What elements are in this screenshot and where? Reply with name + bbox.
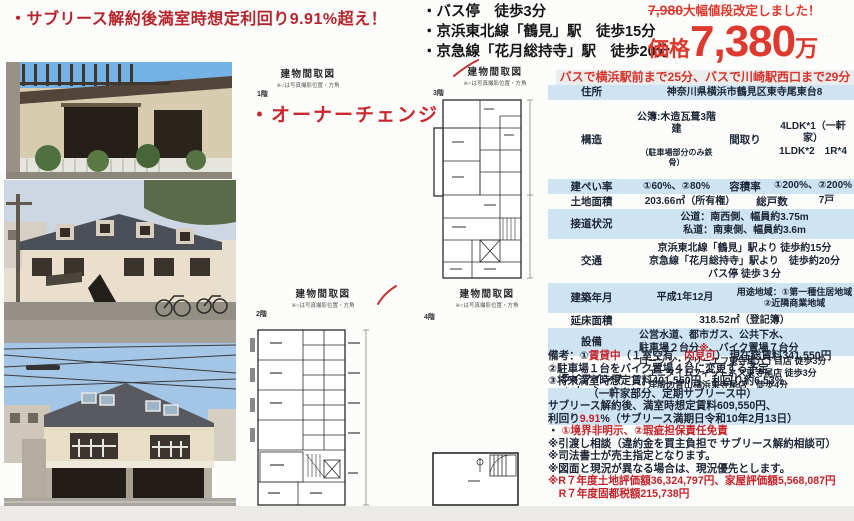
floorplan-header-1: 建物間取図 ※○は写真撮影位置・方角 <box>253 66 363 89</box>
value-transport: 京浜東北線「鶴見」駅より 徒歩約15分 京急線「花月総持寺」駅より 徒歩約20分… <box>635 242 854 281</box>
remark-6-bullet: ・ <box>548 425 562 437</box>
remark-0e: ） 現在総賃料341,550円 <box>716 350 831 362</box>
red-pen-mark-2 <box>376 284 398 306</box>
remark-line-1: ②駐車場１台をバイク置場４台に変更する予定 <box>548 363 854 376</box>
apartment-photo-illustration <box>4 180 236 343</box>
floorplan-subtitle-2: ※○は写真撮影位置・方角 <box>268 301 378 309</box>
remark-line-5: 利回り9.91%（サブリース満期日令和10年2月13日） <box>548 413 854 426</box>
value-land-area: 203.66㎡（所有権） <box>635 196 745 208</box>
price-old: 7,980 <box>648 2 683 18</box>
remark-0a: 備考：① <box>548 350 589 362</box>
label-coverage: 建ぺい率 <box>548 181 635 193</box>
remark-viewable-flag: 内見可 <box>684 350 716 362</box>
label-total-units: 総戸数 <box>745 194 799 209</box>
property-photo-2 <box>4 180 236 343</box>
remark-line-4: サブリース解約後、満室時想定賃料609,550円、 <box>548 400 854 413</box>
label-floor-area: 延床面積 <box>548 315 635 327</box>
structure-main: 公簿:木造瓦葺3階建 <box>635 112 718 136</box>
table-row-built: 建築年月 平成1年12月 用途地域：①第一種住居地域 ②近隣商業地域 <box>548 283 854 313</box>
remark-line-11: R７年度固都税額215,738円 <box>548 488 854 501</box>
value-zoning: 用途地域：①第一種住居地域 ②近隣商業地域 <box>735 287 854 310</box>
remark-line-2: ③将来満室時想定賃料401,550円、利回り約6.53% <box>548 375 854 388</box>
table-row-transport: 交通 京浜東北線「鶴見」駅より 徒歩約15分 京急線「花月総持寺」駅より 徒歩約… <box>548 239 854 283</box>
label-floor-ratio: 容積率 <box>718 179 772 194</box>
red-pen-mark-1 <box>452 58 480 78</box>
remark-line-0: 備考：①賃貸中（１室空有、内見可） 現在総賃料341,550円 <box>548 350 854 363</box>
label-land-area: 土地面積 <box>548 196 635 208</box>
price-unit: 万 <box>795 35 818 61</box>
remark-rented-flag: 賃貸中 <box>589 350 621 362</box>
value-road: 公道：南西側、幅員約3.75m 私道：南東側、幅員約3.6m <box>635 211 854 237</box>
label-layout: 間取り <box>718 132 772 147</box>
floorplan-header-4: 建物間取図 ※○は写真撮影位置・方角 <box>432 286 542 309</box>
flyer-page: ・サブリース解約後満室時想定利回り9.91%超え！ ・バス停 徒歩3分 ・京浜東… <box>0 0 854 521</box>
value-floor-ratio: ①200%、②200% <box>772 180 854 193</box>
floorplan-2f-svg <box>248 322 372 510</box>
remark-line-8: ※司法書士が売主指定となります。 <box>548 450 854 463</box>
label-transport: 交通 <box>548 255 635 267</box>
table-row-land: 土地面積 203.66㎡（所有権） 総戸数 7戸 <box>548 194 854 209</box>
property-photo-3 <box>4 343 236 516</box>
floorplan-title-2: 建物間取図 <box>268 286 378 300</box>
value-structure: 公簿:木造瓦葺3階建 （駐車場部分のみ鉄骨） <box>635 100 718 179</box>
remark-yield-value: 9.91 <box>580 413 601 425</box>
value-total-units: 7戸 <box>799 195 854 208</box>
label-address: 住所 <box>548 86 635 98</box>
price-area: 7,980大幅値段改定しました！ 価格7,380万 <box>648 2 854 74</box>
label-built: 建築年月 <box>548 292 635 304</box>
house-photo-illustration <box>6 62 232 179</box>
property-photo-1 <box>6 62 232 179</box>
floorplan-title-4: 建物間取図 <box>432 286 542 300</box>
floor-label-2f: 2階 <box>256 309 267 319</box>
price-value: 7,380 <box>690 17 795 66</box>
table-row-address: 住所 神奈川県横浜市鶴見区東寺尾東台8 <box>548 85 854 100</box>
price-notice: 大幅値段改定しました！ <box>683 4 821 18</box>
value-address: 神奈川県横浜市鶴見区東寺尾東台8 <box>635 86 854 99</box>
headline-text: ・サブリース解約後満室時想定利回り9.91%超え！ <box>10 5 387 29</box>
floor-label-1f: 1階 <box>257 89 268 99</box>
owner-change-note: ・オーナーチェンジ <box>250 100 439 127</box>
table-row-floor-area: 延床面積 318.52㎡（登記簿） <box>548 313 854 328</box>
footer-strip <box>0 506 854 521</box>
remark-line-9: ※図面と現況が異なる場合は、現況優先とします。 <box>548 463 854 476</box>
floorplan-title-1: 建物間取図 <box>253 66 363 80</box>
value-coverage: ①60%、②80% <box>635 181 718 193</box>
remark-line-7: ※引渡し相談（違約金を買主負担で サブリース解約相談可） <box>548 438 854 451</box>
floorplan-header-2: 建物間取図 ※○は写真撮影位置・方角 <box>268 286 378 309</box>
label-facilities: 設備 <box>548 336 635 348</box>
value-floor-area: 318.52㎡（登記簿） <box>635 314 854 327</box>
table-row-coverage: 建ぺい率 ①60%、②80% 容積率 ①200%、②200% <box>548 179 854 194</box>
floorplan-4f-svg <box>428 446 528 512</box>
label-structure: 構造 <box>548 134 635 146</box>
price-label: 価格 <box>648 38 690 61</box>
remark-line-10: ※R７年度土地評価額36,324,797円、家屋評価額5,568,087円 <box>548 475 854 488</box>
remark-5a: 利回り <box>548 413 580 425</box>
remark-disclaimer: ①境界非明示、②瑕疵担保責任免責 <box>562 425 728 437</box>
structure-sub: （駐車場部分のみ鉄骨） <box>635 148 718 167</box>
value-layout: 4LDK*1（一軒家） 1LDK*2 1R*4 <box>772 121 854 159</box>
label-road: 接道状況 <box>548 218 635 230</box>
remarks-block: 備考：①賃貸中（１室空有、内見可） 現在総賃料341,550円 ②駐車場１台をバ… <box>548 350 854 500</box>
value-built: 平成1年12月 <box>635 292 735 304</box>
floor-label-4f: 4階 <box>424 312 435 322</box>
remark-line-6: ・ ①境界非明示、②瑕疵担保責任免責 <box>548 425 854 438</box>
remark-line-3: （一軒家部分、定期サブリース中） <box>548 388 854 401</box>
floorplan-subtitle-1: ※○は写真撮影位置・方角 <box>253 81 363 89</box>
carport-photo-illustration <box>4 343 236 516</box>
remark-5c: %（サブリース満期日令和10年2月13日） <box>600 413 797 425</box>
floorplan-subtitle-4: ※○は写真撮影位置・方角 <box>432 301 542 309</box>
floorplan-3f-svg <box>432 86 540 286</box>
remark-0c: （１室空有、 <box>621 350 685 362</box>
bus-banner: バスで横浜駅前まで25分、バスで川崎駅西口まで29分 <box>556 70 854 85</box>
table-row-road: 接道状況 公道：南西側、幅員約3.75m 私道：南東側、幅員約3.6m <box>548 209 854 239</box>
table-row-structure: 構造 公簿:木造瓦葺3階建 （駐車場部分のみ鉄骨） 間取り 4LDK*1（一軒家… <box>548 100 854 179</box>
